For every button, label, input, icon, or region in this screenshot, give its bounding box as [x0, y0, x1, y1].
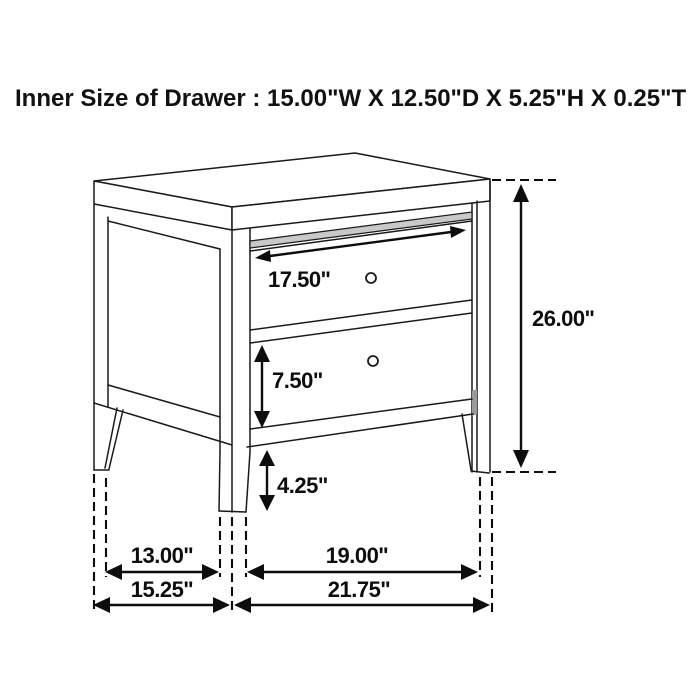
- right-post: [462, 181, 490, 473]
- drawer-height-down-head: [254, 411, 270, 428]
- front-corner-post: [219, 229, 250, 512]
- dimension-overall-width: 21.75": [234, 577, 490, 613]
- bottom-drawer-height-label: 7.50": [272, 368, 323, 393]
- clearance-down-head: [259, 495, 275, 511]
- side-spacing-right-head: [202, 564, 219, 580]
- drawer-height-up-head: [254, 345, 270, 362]
- overall-width-label: 21.75": [328, 577, 390, 602]
- nightstand-dimension-diagram: 26.00" 17.50" 7.50" 4.25" 13: [0, 0, 700, 700]
- bottom-drawer-bottom-edge: [250, 399, 472, 429]
- corner-leg-bottom-edge: [219, 511, 246, 512]
- front-bottom-rail-edge: [247, 414, 473, 447]
- dimension-overall-depth: 15.25": [93, 577, 230, 613]
- width-left-head: [234, 597, 251, 613]
- width-right-head: [473, 597, 490, 613]
- bottom-drawer-top-edge: [250, 313, 472, 343]
- bottom-drawer-knob: [368, 356, 378, 366]
- dimension-front-leg-spacing: 19.00": [247, 543, 478, 580]
- corner-leg-right-taper: [246, 452, 250, 512]
- nightstand-line-art: [94, 153, 490, 512]
- clearance-up-head: [259, 450, 275, 466]
- side-leg-spacing-label: 13.00": [131, 543, 193, 568]
- front-leg-spacing-label: 19.00": [326, 543, 388, 568]
- drawer-front-face: [247, 212, 477, 447]
- right-gap-strip: [472, 389, 477, 416]
- height-arrow-down-head: [513, 450, 529, 468]
- top-drawer-knob: [366, 273, 376, 283]
- depth-right-head: [213, 597, 230, 613]
- dimension-floor-clearance: 4.25": [259, 450, 328, 511]
- left-side-panel: [94, 204, 232, 470]
- side-spacing-left-head: [105, 564, 122, 580]
- drawer-width-left-head: [255, 250, 271, 262]
- depth-left-head: [93, 597, 110, 613]
- front-spacing-left-head: [247, 564, 264, 580]
- height-arrow-up-head: [513, 184, 529, 202]
- overall-depth-label: 15.25": [131, 577, 193, 602]
- corner-leg-left-taper: [219, 452, 220, 511]
- floor-clearance-label: 4.25": [277, 473, 328, 498]
- top-drawer-top-edge: [250, 221, 472, 251]
- front-spacing-right-head: [461, 564, 478, 580]
- overall-height-label: 26.00": [532, 306, 594, 331]
- right-leg-taper: [462, 414, 471, 470]
- top-drawer-width-label: 17.50": [268, 267, 330, 292]
- drawer-width-right-head: [450, 226, 466, 238]
- side-bottom-edge: [94, 403, 232, 445]
- dimension-diagram-page: Inner Size of Drawer : 15.00"W X 12.50"D…: [0, 0, 700, 700]
- right-leg-bottom-edge: [471, 471, 489, 473]
- dimension-overall-height: 26.00": [513, 184, 594, 468]
- dimension-side-leg-spacing: 13.00": [105, 543, 219, 580]
- dimension-bottom-drawer-height: 7.50": [254, 345, 323, 428]
- top-drawer-bottom-edge: [250, 300, 472, 330]
